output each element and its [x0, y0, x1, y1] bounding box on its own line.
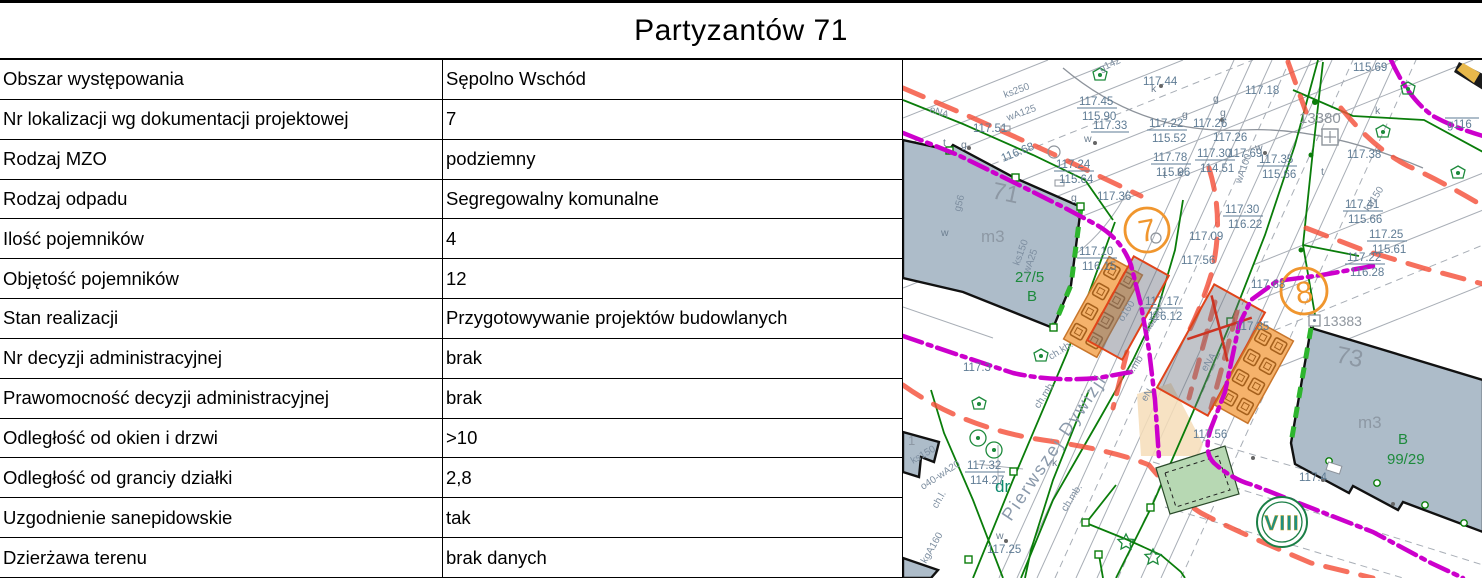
- svg-text:t: t: [943, 137, 946, 149]
- svg-text:117.36: 117.36: [1097, 191, 1131, 203]
- svg-text:117.24: 117.24: [1056, 159, 1091, 171]
- svg-text:k: k: [1151, 83, 1157, 95]
- svg-text:117.22: 117.22: [1149, 118, 1183, 130]
- svg-text:117.18: 117.18: [1245, 85, 1279, 97]
- svg-text:117.10: 117.10: [1079, 246, 1113, 258]
- sheet: Partyzantów 71 Obszar występowaniaSępoln…: [0, 0, 1482, 578]
- zone-marker-viii: VIII: [1257, 497, 1307, 547]
- svg-text:117.32: 117.32: [967, 460, 1001, 472]
- svg-text:wA125: wA125: [1004, 103, 1038, 124]
- svg-text:k: k: [1177, 167, 1183, 179]
- properties-table: Obszar występowaniaSępolno Wschód Nr lok…: [0, 60, 902, 578]
- building-type: m3: [981, 227, 1005, 246]
- svg-text:VIII: VIII: [1264, 512, 1300, 535]
- building-number: 1: [908, 433, 915, 448]
- svg-text:115.64: 115.64: [1059, 174, 1094, 186]
- svg-text:w: w: [1254, 142, 1263, 154]
- page-title: Partyzantów 71: [634, 14, 848, 48]
- row-value: Segregowalny komunalne: [443, 180, 902, 220]
- row-value: 4: [443, 219, 902, 259]
- row-value: Sępolno Wschód: [443, 60, 902, 100]
- svg-text:ch.l.: ch.l.: [930, 489, 949, 510]
- svg-text:117.56: 117.56: [1181, 255, 1215, 267]
- svg-text:ks250: ks250: [1002, 81, 1031, 101]
- hatched-corner-building: [1454, 62, 1482, 90]
- building-type: m3: [1358, 413, 1382, 432]
- svg-text:117.09: 117.09: [1189, 231, 1223, 243]
- row-label: Nr decyzji administracyjnej: [0, 339, 443, 379]
- parcel-class: B: [1027, 288, 1037, 305]
- svg-text:8: 8: [1293, 274, 1315, 311]
- svg-text:g: g: [1182, 109, 1188, 121]
- location-marker-8: 8: [1281, 268, 1327, 314]
- shrub-icon: [970, 430, 1002, 458]
- row-label: Ilość pojemników: [0, 219, 443, 259]
- svg-text:g: g: [961, 139, 967, 151]
- row-value: brak danych: [443, 538, 902, 578]
- row-label: Objętość pojemników: [0, 259, 443, 299]
- svg-text:114.27: 114.27: [970, 475, 1004, 487]
- svg-text:114.51: 114.51: [1200, 163, 1234, 175]
- svg-text:117.26: 117.26: [1213, 132, 1247, 144]
- svg-text:117.17: 117.17: [1145, 296, 1179, 308]
- svg-text:117.26: 117.26: [1193, 118, 1227, 130]
- row-label: Dzierżawa terenu: [0, 538, 443, 578]
- svg-text:w: w: [995, 530, 1004, 542]
- map-panel: 71 m3 27/5 B 73 m3 B 99/29: [902, 60, 1482, 578]
- svg-text:117.44: 117.44: [1143, 76, 1178, 88]
- row-label: Nr lokalizacji wg dokumentacji projektow…: [0, 100, 443, 140]
- svg-text:117.30: 117.30: [1225, 204, 1259, 216]
- location-marker-7: 7: [1125, 208, 1169, 252]
- svg-text:w: w: [940, 227, 949, 239]
- row-label: Obszar występowania: [0, 60, 443, 100]
- svg-text:o40-wA20: o40-wA20: [919, 459, 963, 493]
- svg-text:115.96: 115.96: [1156, 167, 1190, 179]
- svg-text:13380: 13380: [1299, 110, 1341, 127]
- row-value: 2,8: [443, 458, 902, 498]
- svg-text:k: k: [1052, 457, 1058, 469]
- svg-text:115.66: 115.66: [1262, 169, 1296, 181]
- row-value: Przygotowywanie projektów budowlanych: [443, 299, 902, 339]
- row-label: Uzgodnienie sanepidowskie: [0, 498, 443, 538]
- svg-text:13383: 13383: [1323, 313, 1362, 329]
- svg-text:117.22: 117.22: [1347, 252, 1381, 264]
- svg-text:116.22: 116.22: [1228, 219, 1262, 231]
- svg-text:117.35: 117.35: [1235, 321, 1269, 333]
- svg-text:t: t: [1321, 166, 1324, 178]
- svg-text:117.25: 117.25: [1369, 229, 1403, 241]
- svg-text:117.68: 117.68: [1251, 279, 1285, 291]
- svg-text:g: g: [1213, 93, 1219, 105]
- svg-text:115.52: 115.52: [1152, 133, 1186, 145]
- svg-text:g: g: [1071, 192, 1077, 204]
- svg-text:7: 7: [1136, 212, 1159, 249]
- svg-text:117.25: 117.25: [987, 544, 1021, 556]
- svg-text:ch.kb.: ch.kb.: [1047, 339, 1075, 362]
- svg-text:g116: g116: [1447, 119, 1472, 131]
- row-value: podziemny: [443, 140, 902, 180]
- svg-text:117.56: 117.56: [1193, 429, 1227, 441]
- row-label: Stan realizacji: [0, 299, 443, 339]
- parcel-number: 73: [1334, 341, 1366, 373]
- row-value: 7: [443, 100, 902, 140]
- row-value: >10: [443, 419, 902, 459]
- parcel-id: 99/29: [1387, 451, 1425, 468]
- svg-text:117.35: 117.35: [1259, 154, 1293, 166]
- row-label: Rodzaj odpadu: [0, 180, 443, 220]
- row-label: Rodzaj MZO: [0, 140, 443, 180]
- row-label: Odległość od granciy działki: [0, 458, 443, 498]
- svg-text:116.28: 116.28: [1350, 267, 1384, 279]
- svg-text:117.4: 117.4: [1299, 472, 1328, 484]
- row-value: tak: [443, 498, 902, 538]
- svg-text:t: t: [1163, 169, 1166, 181]
- cadastral-map: 71 m3 27/5 B 73 m3 B 99/29: [903, 60, 1482, 578]
- content: Obszar występowaniaSępolno Wschód Nr lok…: [0, 60, 1482, 578]
- svg-text:l.mb: l.mb: [1126, 353, 1146, 375]
- row-label: Odległość od okien i drzwi: [0, 419, 443, 459]
- svg-text:116.15: 116.15: [1082, 261, 1116, 273]
- svg-text:117.38: 117.38: [1347, 149, 1381, 161]
- row-value: brak: [443, 379, 902, 419]
- row-label: Prawomocność decyzji administracyjnej: [0, 379, 443, 419]
- svg-text:ch.mb.: ch.mb.: [1059, 482, 1085, 513]
- svg-text:117.3: 117.3: [963, 362, 991, 374]
- svg-text:115.66: 115.66: [1348, 214, 1382, 226]
- svg-text:kgA160: kgA160: [919, 530, 946, 565]
- svg-text:117.78: 117.78: [1153, 152, 1187, 164]
- svg-text:117.51: 117.51: [973, 123, 1007, 135]
- title-bar: Partyzantów 71: [0, 3, 1482, 60]
- svg-text:115.69: 115.69: [1353, 62, 1387, 74]
- parcel-class: B: [1398, 431, 1408, 448]
- svg-text:k: k: [1375, 105, 1381, 117]
- svg-text:115.90: 115.90: [1082, 111, 1116, 123]
- row-value: 12: [443, 259, 902, 299]
- svg-text:g142: g142: [1098, 60, 1123, 75]
- svg-text:w: w: [1083, 133, 1092, 145]
- row-value: brak: [443, 339, 902, 379]
- building-73: 73 m3 B 99/29: [1291, 328, 1482, 532]
- svg-text:117.45: 117.45: [1079, 96, 1113, 108]
- svg-text:117.30: 117.30: [1197, 148, 1231, 160]
- svg-text:g: g: [1220, 107, 1226, 119]
- green-hatched-area: [1156, 446, 1239, 514]
- svg-text:116.68: 116.68: [1000, 141, 1036, 165]
